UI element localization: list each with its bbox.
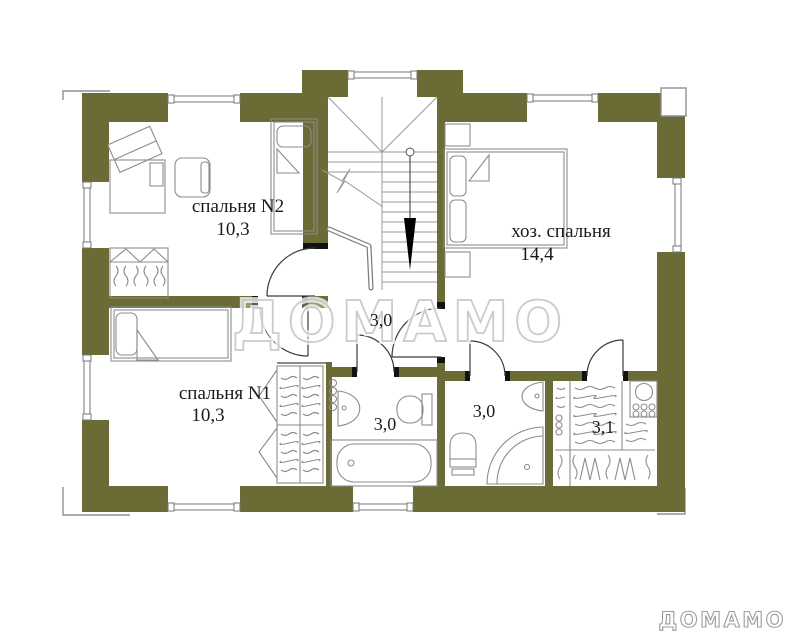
label-bedroom1-area: 10,3 bbox=[191, 405, 224, 426]
label-bedroom1-name: спальня N1 bbox=[179, 383, 271, 404]
watermark-center: ДОМАМО ДОМАМО bbox=[232, 290, 568, 355]
toilet-bathroom2 bbox=[450, 433, 476, 475]
corner-shower bbox=[487, 427, 543, 484]
tilted-armchair bbox=[108, 126, 162, 172]
stairs-break-line bbox=[322, 169, 383, 207]
label-bathroom1-area: 3,0 bbox=[374, 414, 397, 434]
label-bedroom2-area: 10,3 bbox=[216, 219, 249, 240]
blanket-fold bbox=[137, 330, 158, 360]
floor-plan-page: ДОМАМО ДОМАМО спальня N2 10,3 хоз. спаль… bbox=[0, 0, 800, 640]
label-hall-area: 3,0 bbox=[370, 310, 393, 330]
watermark-center-text: ДОМАМО bbox=[232, 290, 568, 355]
label-bathroom2-area: 3,0 bbox=[473, 401, 496, 421]
label-master-name: хоз. спальня bbox=[511, 221, 611, 242]
staircase bbox=[322, 97, 437, 290]
nightstand-top bbox=[445, 124, 470, 146]
wall-closet-top-left bbox=[553, 371, 582, 381]
wall-bedroom2-stairs bbox=[303, 122, 328, 243]
window-bottom-bedroom1 bbox=[168, 486, 240, 512]
office-chair bbox=[175, 158, 210, 197]
bathtub bbox=[331, 440, 437, 486]
label-closet-area: 3,1 bbox=[592, 417, 615, 437]
toilet-bathroom1 bbox=[397, 394, 432, 425]
door-bedroom2 bbox=[267, 248, 315, 296]
wall-closet-top-right bbox=[628, 371, 657, 381]
wall-bath1-top-right bbox=[394, 367, 437, 377]
sink-bathroom2 bbox=[522, 382, 543, 411]
door-arc bbox=[267, 248, 315, 296]
drain bbox=[525, 465, 530, 470]
floor-plan: ДОМАМО ДОМАМО спальня N2 10,3 хоз. спаль… bbox=[0, 0, 800, 640]
door-arc bbox=[587, 340, 623, 376]
stairs-arrow-start bbox=[406, 148, 414, 156]
nightstand-bottom bbox=[445, 252, 470, 277]
pillow bbox=[450, 200, 466, 242]
window-left-bedroom2 bbox=[82, 182, 109, 248]
wardrobe-bedroom2 bbox=[110, 248, 168, 298]
watermark-corner-text: ДОМАМО bbox=[659, 608, 786, 632]
sink-bathroom1 bbox=[338, 391, 360, 426]
door-closet bbox=[587, 340, 623, 376]
window-bottom-bathroom1 bbox=[353, 486, 413, 512]
window-left-bedroom1 bbox=[82, 355, 109, 420]
wall-bath2-closet bbox=[545, 371, 553, 486]
label-bedroom2-name: спальня N2 bbox=[192, 196, 284, 217]
label-master-area: 14,4 bbox=[520, 244, 554, 265]
window-right-master bbox=[657, 178, 685, 252]
stair-partition bbox=[329, 229, 371, 288]
window-top-bedroom2 bbox=[168, 93, 240, 122]
window-top-master bbox=[527, 93, 598, 122]
wall-bath1-bath2 bbox=[437, 363, 445, 486]
pillow bbox=[116, 313, 137, 355]
monitor bbox=[150, 163, 163, 186]
stairs-winders bbox=[328, 97, 437, 152]
pillow bbox=[450, 156, 466, 196]
bed-bedroom1 bbox=[111, 307, 231, 361]
window-top-stairs bbox=[348, 70, 417, 97]
blanket-fold bbox=[469, 155, 489, 181]
washing-machine bbox=[630, 381, 657, 417]
roof-box-top-right bbox=[661, 88, 686, 116]
blanket-fold bbox=[277, 149, 299, 173]
wall-bath2-top-right bbox=[510, 371, 545, 381]
drain bbox=[348, 460, 354, 466]
